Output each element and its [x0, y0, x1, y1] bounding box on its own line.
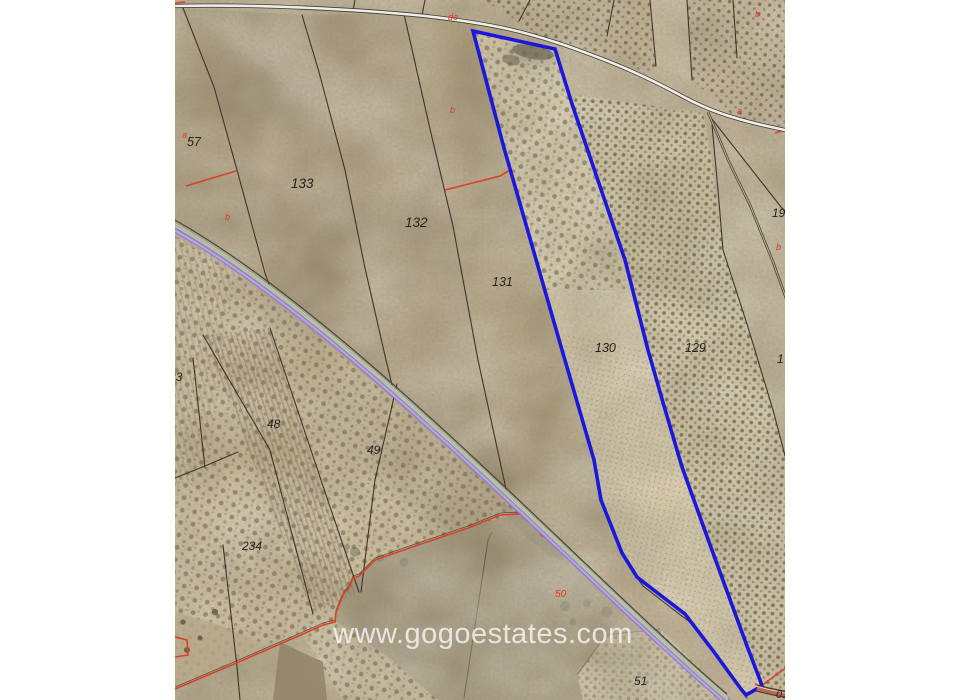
svg-text:b: b	[755, 9, 760, 19]
svg-text:131: 131	[492, 275, 513, 289]
svg-text:129: 129	[685, 341, 706, 355]
svg-text:b: b	[450, 105, 455, 115]
svg-text:51: 51	[634, 674, 647, 688]
svg-text:1: 1	[777, 352, 784, 366]
svg-text:b: b	[776, 242, 781, 252]
svg-text:19: 19	[772, 206, 785, 220]
svg-text:a: a	[737, 106, 742, 116]
svg-text:50: 50	[555, 589, 567, 600]
svg-text:de: de	[448, 12, 458, 22]
svg-text:132: 132	[405, 215, 428, 230]
svg-text:01: 01	[776, 689, 785, 700]
svg-text:130: 130	[595, 341, 616, 355]
svg-text:133: 133	[291, 176, 314, 191]
svg-text:a: a	[182, 130, 187, 140]
svg-text:48: 48	[267, 417, 281, 431]
svg-text:57: 57	[187, 135, 202, 149]
svg-text:49: 49	[367, 443, 381, 457]
svg-text:33: 33	[175, 370, 183, 384]
svg-text:b: b	[225, 212, 230, 222]
svg-text:234: 234	[241, 539, 262, 553]
